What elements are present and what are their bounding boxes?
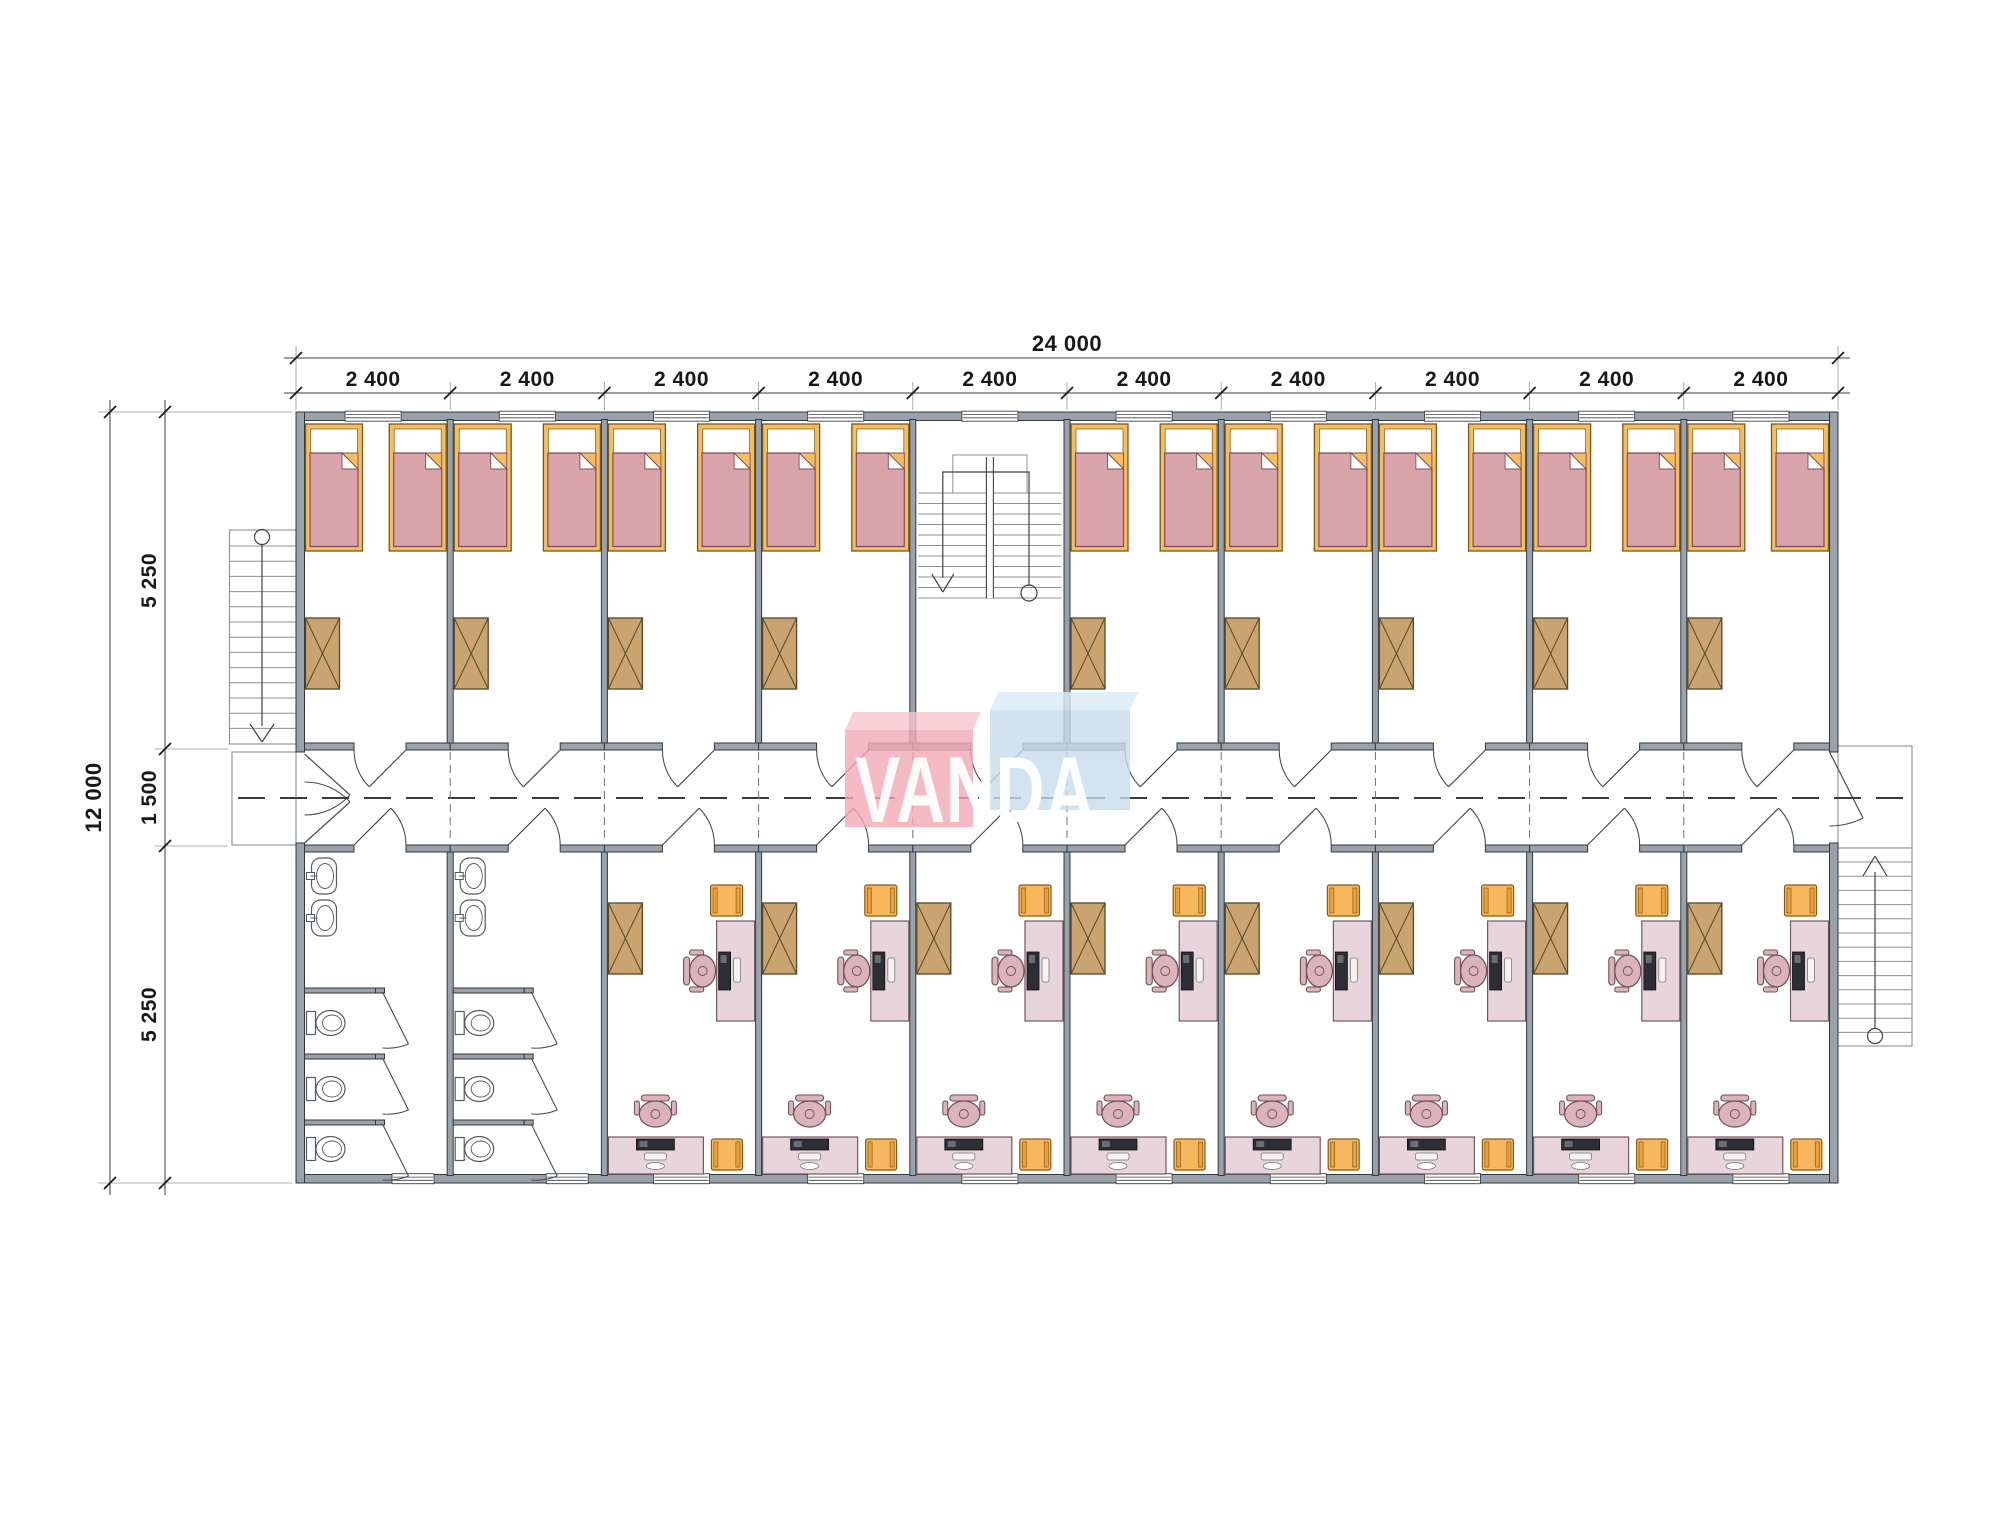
- stool-side: [1810, 888, 1814, 913]
- window: [1116, 1174, 1172, 1184]
- office-chair: [1714, 1095, 1756, 1127]
- study-module: [608, 885, 754, 1174]
- stool-side: [1661, 1142, 1665, 1167]
- door-swing: [1742, 750, 1757, 787]
- bedroom-module: [1071, 424, 1217, 689]
- chair-arm: [1764, 950, 1778, 955]
- door-swing: [354, 750, 369, 787]
- monitor-screen: [639, 1141, 647, 1147]
- stool-side: [1330, 888, 1334, 913]
- chair-arm: [1405, 1101, 1410, 1115]
- corridor-wall: [1684, 845, 1742, 852]
- chair-back: [950, 1095, 978, 1101]
- exterior-wall-left: [296, 843, 305, 1183]
- line: [369, 750, 406, 787]
- corridor-wall: [714, 845, 758, 852]
- chair-arm: [634, 1101, 639, 1115]
- dimension-label: 2 400: [346, 368, 401, 391]
- chair-back: [1104, 1095, 1132, 1101]
- chair-arm: [1560, 1101, 1565, 1115]
- toilet-tank: [455, 1138, 464, 1161]
- monitor-screen: [794, 1141, 802, 1147]
- keyboard: [1261, 1153, 1283, 1160]
- monitor-screen: [1029, 955, 1035, 963]
- stool-side: [1815, 1142, 1819, 1167]
- chair-back: [1609, 957, 1615, 985]
- window: [808, 411, 864, 421]
- partition-wall-top-band: [601, 420, 607, 751]
- toilet-tank: [307, 1012, 316, 1035]
- dimension-label: 2 400: [1733, 368, 1788, 391]
- dimension-label: 12 000: [81, 762, 106, 832]
- window: [1270, 411, 1326, 421]
- line: [1449, 750, 1486, 787]
- stool-side: [1793, 1142, 1797, 1167]
- vanda-logo: VANDA: [845, 692, 1138, 842]
- partition-wall-top-band: [1527, 420, 1533, 751]
- stool-side: [1353, 888, 1357, 913]
- door-swing: [1624, 808, 1639, 845]
- corridor-wall: [1530, 743, 1588, 750]
- mouse: [1109, 1163, 1127, 1170]
- study-module: [763, 885, 909, 1174]
- chair-arm: [826, 1101, 831, 1115]
- stall-partition: [305, 1120, 376, 1125]
- bedroom-module: [306, 424, 447, 689]
- door-swing: [1830, 818, 1864, 826]
- toilet-bowl: [465, 1137, 494, 1162]
- keyboard: [1505, 958, 1512, 982]
- monitor-screen: [875, 955, 881, 963]
- office-chair: [684, 950, 716, 992]
- chair-arm: [1288, 1101, 1293, 1115]
- monitor-screen: [1102, 1141, 1110, 1147]
- chair-arm: [690, 950, 704, 955]
- corridor-wall: [1221, 845, 1279, 852]
- monitor-screen: [1719, 1141, 1727, 1147]
- partition-wall-bottom-band: [1372, 845, 1378, 1176]
- corridor-wall: [450, 743, 508, 750]
- dimension-label: 2 400: [962, 368, 1017, 391]
- keyboard: [1350, 958, 1357, 982]
- corridor-wall: [1221, 743, 1279, 750]
- chair-back: [796, 1095, 824, 1101]
- floor-plan-sheet: 24 0002 4002 4002 4002 4002 4002 4002 40…: [0, 0, 2000, 1520]
- stool-side: [1661, 888, 1665, 913]
- line: [383, 1124, 409, 1176]
- bathroom-module: [305, 858, 409, 1180]
- stool-side: [1639, 1142, 1643, 1167]
- bedroom-module: [1379, 424, 1525, 689]
- keyboard: [1042, 958, 1049, 982]
- partition-wall-bottom-band: [756, 845, 762, 1176]
- partition-wall-bottom-band: [1218, 845, 1224, 1176]
- keyboard: [1107, 1153, 1129, 1160]
- stool-side: [713, 888, 717, 913]
- monitor-screen: [1337, 955, 1343, 963]
- monitor-screen: [721, 955, 727, 963]
- corridor-wall: [1640, 743, 1684, 750]
- monitor-screen: [1795, 955, 1801, 963]
- chair-seat: [1410, 1101, 1442, 1127]
- stool-side: [890, 1142, 894, 1167]
- corridor-wall: [1023, 845, 1067, 852]
- office-chair: [838, 950, 870, 992]
- office-chair: [1405, 1095, 1447, 1127]
- corridor-wall: [1530, 845, 1588, 852]
- chair-seat: [1719, 1101, 1751, 1127]
- chair-seat: [1615, 955, 1641, 987]
- line: [383, 992, 409, 1044]
- corridor-wall: [1485, 845, 1529, 852]
- stall-door-swing: [531, 1044, 557, 1048]
- chair-arm: [1134, 1101, 1139, 1115]
- corridor-wall: [1485, 743, 1529, 750]
- corridor-wall: [1375, 845, 1433, 852]
- chair-arm: [1306, 950, 1320, 955]
- stool-side: [736, 888, 740, 913]
- stall-partition: [453, 1120, 524, 1125]
- office-chair: [943, 1095, 985, 1127]
- stall-partition: [453, 1054, 524, 1059]
- stair-divider: [986, 457, 993, 598]
- dimension-label: 2 400: [654, 368, 709, 391]
- partition-wall-bottom-band: [1527, 845, 1533, 1176]
- stool-side: [1507, 888, 1511, 913]
- corridor-wall: [1684, 743, 1742, 750]
- floor-plan-drawing: 24 0002 4002 4002 4002 4002 4002 4002 40…: [0, 0, 2000, 1520]
- dimension-label: 24 000: [1032, 331, 1102, 356]
- window: [1579, 1174, 1635, 1184]
- chair-back: [1455, 957, 1461, 985]
- dimension-label: 5 250: [138, 553, 161, 608]
- line: [305, 754, 351, 795]
- line: [1140, 750, 1177, 787]
- partition-wall-bottom-band: [601, 845, 607, 1176]
- corridor-wall: [1331, 743, 1375, 750]
- corridor-wall: [1640, 845, 1684, 852]
- corridor-wall: [450, 845, 508, 852]
- bedroom-module: [1534, 424, 1680, 689]
- office-chair: [1251, 1095, 1293, 1127]
- partition-wall-bottom-band: [447, 845, 453, 1176]
- chair-arm: [1714, 1101, 1719, 1115]
- stool-side: [1044, 1142, 1048, 1167]
- toilet-bowl: [316, 1137, 345, 1162]
- door-swing: [508, 750, 523, 787]
- corridor-wall: [406, 743, 450, 750]
- monitor-screen: [1183, 955, 1189, 963]
- chair-arm: [1461, 950, 1475, 955]
- corridor-wall: [1794, 845, 1830, 852]
- chair-arm: [998, 950, 1012, 955]
- door-swing: [1779, 808, 1794, 845]
- dimension-label: 5 250: [138, 987, 161, 1042]
- stool-side: [1045, 888, 1049, 913]
- office-chair: [789, 1095, 831, 1127]
- door-swing: [1162, 808, 1177, 845]
- toilet-tank: [455, 1012, 464, 1035]
- office-chair: [1609, 950, 1641, 992]
- corridor-wall: [604, 845, 662, 852]
- stool-side: [1353, 1142, 1357, 1167]
- window: [1733, 411, 1789, 421]
- monitor-screen: [1256, 1141, 1264, 1147]
- stool-side: [1199, 1142, 1203, 1167]
- chair-seat: [1565, 1101, 1597, 1127]
- line: [1279, 808, 1316, 845]
- chair-arm: [1751, 1101, 1756, 1115]
- keyboard: [799, 1153, 821, 1160]
- partition-wall-bottom-band: [1681, 845, 1687, 1176]
- chair-arm: [844, 950, 858, 955]
- chair-arm: [789, 1101, 794, 1115]
- line: [1742, 808, 1779, 845]
- line: [1588, 808, 1625, 845]
- study-module: [1534, 885, 1680, 1174]
- partition-wall-top-band: [756, 420, 762, 751]
- keyboard: [1808, 958, 1815, 982]
- study-module: [1071, 885, 1217, 1174]
- corridor-wall: [869, 845, 913, 852]
- stool-side: [1022, 1142, 1026, 1167]
- window: [962, 411, 1018, 421]
- chair-seat: [1764, 955, 1790, 987]
- bedroom-module: [454, 424, 600, 689]
- toilet-tank: [455, 1078, 464, 1101]
- mouse: [646, 1163, 664, 1170]
- stool-side: [1022, 888, 1026, 913]
- corridor-wall: [305, 743, 355, 750]
- stool-side: [1199, 888, 1203, 913]
- chair-seat: [1306, 955, 1332, 987]
- chair-arm: [1442, 1101, 1447, 1115]
- chair-back: [1758, 957, 1764, 985]
- corridor-wall: [1067, 845, 1125, 852]
- stool-side: [1331, 1142, 1335, 1167]
- chair-arm: [690, 987, 704, 992]
- stool-side: [890, 888, 894, 913]
- study-module: [1379, 885, 1525, 1174]
- monitor-screen: [1410, 1141, 1418, 1147]
- chair-seat: [690, 955, 716, 987]
- window: [1270, 1174, 1326, 1184]
- line: [662, 808, 699, 845]
- chair-seat: [1461, 955, 1487, 987]
- corridor-wall: [604, 743, 662, 750]
- partition-wall-top-band: [1681, 420, 1687, 751]
- line: [354, 808, 391, 845]
- partition-wall-top-band: [1372, 420, 1378, 751]
- chair-arm: [1615, 950, 1629, 955]
- line: [383, 1058, 409, 1110]
- office-chair: [1300, 950, 1332, 992]
- logo-pink-box-top: [845, 712, 981, 730]
- exterior-stair-left: [230, 530, 297, 745]
- partition-wall-bottom-band: [910, 845, 916, 1176]
- monitor-screen: [1492, 955, 1498, 963]
- dimension-label: 2 400: [1117, 368, 1172, 391]
- chair-arm: [1152, 950, 1166, 955]
- chair-seat: [1256, 1101, 1288, 1127]
- door-swing: [545, 808, 560, 845]
- bedroom-module: [1688, 424, 1829, 689]
- monitor-screen: [1565, 1141, 1573, 1147]
- line: [531, 1124, 557, 1176]
- office-chair: [1455, 950, 1487, 992]
- logo-text: VANDA: [855, 737, 1095, 842]
- chair-seat: [794, 1101, 826, 1127]
- line: [508, 808, 545, 845]
- corridor-wall: [1177, 743, 1221, 750]
- bedroom-module: [608, 424, 754, 689]
- chair-arm: [1152, 987, 1166, 992]
- toilet-tank: [307, 1138, 316, 1161]
- partition-wall-bottom-band: [1064, 845, 1070, 1176]
- stall-partition: [453, 988, 524, 993]
- chair-back: [684, 957, 690, 985]
- dimension-label: 2 400: [1425, 368, 1480, 391]
- keyboard: [1415, 1153, 1437, 1160]
- stall-door-swing: [383, 1044, 409, 1048]
- keyboard: [1724, 1153, 1746, 1160]
- office-chair: [992, 950, 1024, 992]
- study-module: [1225, 885, 1371, 1174]
- line: [1294, 750, 1331, 787]
- line: [1603, 750, 1640, 787]
- line: [1830, 752, 1864, 818]
- keyboard: [644, 1153, 666, 1160]
- study-module: [917, 885, 1063, 1174]
- chair-back: [1721, 1095, 1749, 1101]
- bedroom-module: [763, 424, 909, 689]
- chair-back: [641, 1095, 669, 1101]
- dimension-label: 2 400: [500, 368, 555, 391]
- toilet-bowl: [316, 1011, 345, 1036]
- toilet-bowl: [465, 1011, 494, 1036]
- chair-back: [1412, 1095, 1440, 1101]
- chair-seat: [639, 1101, 671, 1127]
- chair-back: [838, 957, 844, 985]
- chair-back: [1300, 957, 1306, 985]
- office-chair: [1146, 950, 1178, 992]
- stool-side: [867, 888, 871, 913]
- chair-arm: [1597, 1101, 1602, 1115]
- window: [654, 411, 710, 421]
- corridor-wall: [714, 743, 758, 750]
- office-chair: [1758, 950, 1790, 992]
- corridor-wall: [560, 845, 604, 852]
- chair-arm: [980, 1101, 985, 1115]
- corridor-wall: [305, 845, 355, 852]
- chair-arm: [1615, 987, 1629, 992]
- keyboard: [1196, 958, 1203, 982]
- stool-side: [1507, 1142, 1511, 1167]
- stool-side: [1177, 1142, 1181, 1167]
- chair-arm: [844, 987, 858, 992]
- stool-side: [1787, 888, 1791, 913]
- chair-arm: [998, 987, 1012, 992]
- toilet-bowl: [465, 1077, 494, 1102]
- keyboard: [888, 958, 895, 982]
- corridor-wall: [1375, 743, 1433, 750]
- monitor-screen: [1646, 955, 1652, 963]
- door-swing: [1470, 808, 1485, 845]
- dimension-label: 2 400: [808, 368, 863, 391]
- chair-arm: [671, 1101, 676, 1115]
- stool-side: [1484, 888, 1488, 913]
- chair-back: [992, 957, 998, 985]
- mouse: [1263, 1163, 1281, 1170]
- stool-side: [736, 1142, 740, 1167]
- window: [546, 1174, 588, 1184]
- keyboard: [1570, 1153, 1592, 1160]
- keyboard: [1659, 958, 1666, 982]
- line: [1125, 808, 1162, 845]
- stool-side: [868, 1142, 872, 1167]
- window: [654, 1174, 710, 1184]
- keyboard: [953, 1153, 975, 1160]
- exterior-wall-right: [1830, 843, 1839, 1183]
- office-chair: [634, 1095, 676, 1127]
- chair-arm: [1461, 987, 1475, 992]
- stall-door-swing: [383, 1110, 409, 1114]
- corridor-wall: [913, 845, 971, 852]
- stairwell-module: [918, 455, 1061, 601]
- toilet-tank: [307, 1078, 316, 1101]
- office-chair: [1097, 1095, 1139, 1127]
- stool-side: [714, 1142, 718, 1167]
- chair-arm: [1764, 987, 1778, 992]
- chair-arm: [1251, 1101, 1256, 1115]
- stool-side: [1176, 888, 1180, 913]
- window: [962, 1174, 1018, 1184]
- line: [531, 1058, 557, 1110]
- window: [1425, 1174, 1481, 1184]
- study-module: [1688, 885, 1829, 1174]
- dimension-label: 1 500: [138, 770, 161, 825]
- chair-back: [1258, 1095, 1286, 1101]
- mouse: [801, 1163, 819, 1170]
- window: [1425, 411, 1481, 421]
- partition-wall-top-band: [910, 420, 916, 751]
- toilet-bowl: [316, 1077, 345, 1102]
- door-swing: [699, 808, 714, 845]
- door-swing: [662, 750, 677, 787]
- window: [499, 411, 555, 421]
- corridor-wall: [1177, 845, 1221, 852]
- corridor-wall: [1331, 845, 1375, 852]
- door-swing: [1433, 750, 1448, 787]
- line: [1757, 750, 1794, 787]
- chair-arm: [1097, 1101, 1102, 1115]
- line: [1433, 808, 1470, 845]
- exterior-wall-right: [1830, 412, 1839, 752]
- mouse: [1417, 1163, 1435, 1170]
- chair-back: [1567, 1095, 1595, 1101]
- window: [1733, 1174, 1789, 1184]
- door-swing: [391, 808, 406, 845]
- chair-seat: [1152, 955, 1178, 987]
- line: [678, 750, 715, 787]
- logo-blue-box-top: [990, 692, 1138, 710]
- mouse: [1726, 1163, 1744, 1170]
- mouse: [955, 1163, 973, 1170]
- window: [1579, 411, 1635, 421]
- chair-seat: [1102, 1101, 1134, 1127]
- office-chair: [1560, 1095, 1602, 1127]
- chair-seat: [844, 955, 870, 987]
